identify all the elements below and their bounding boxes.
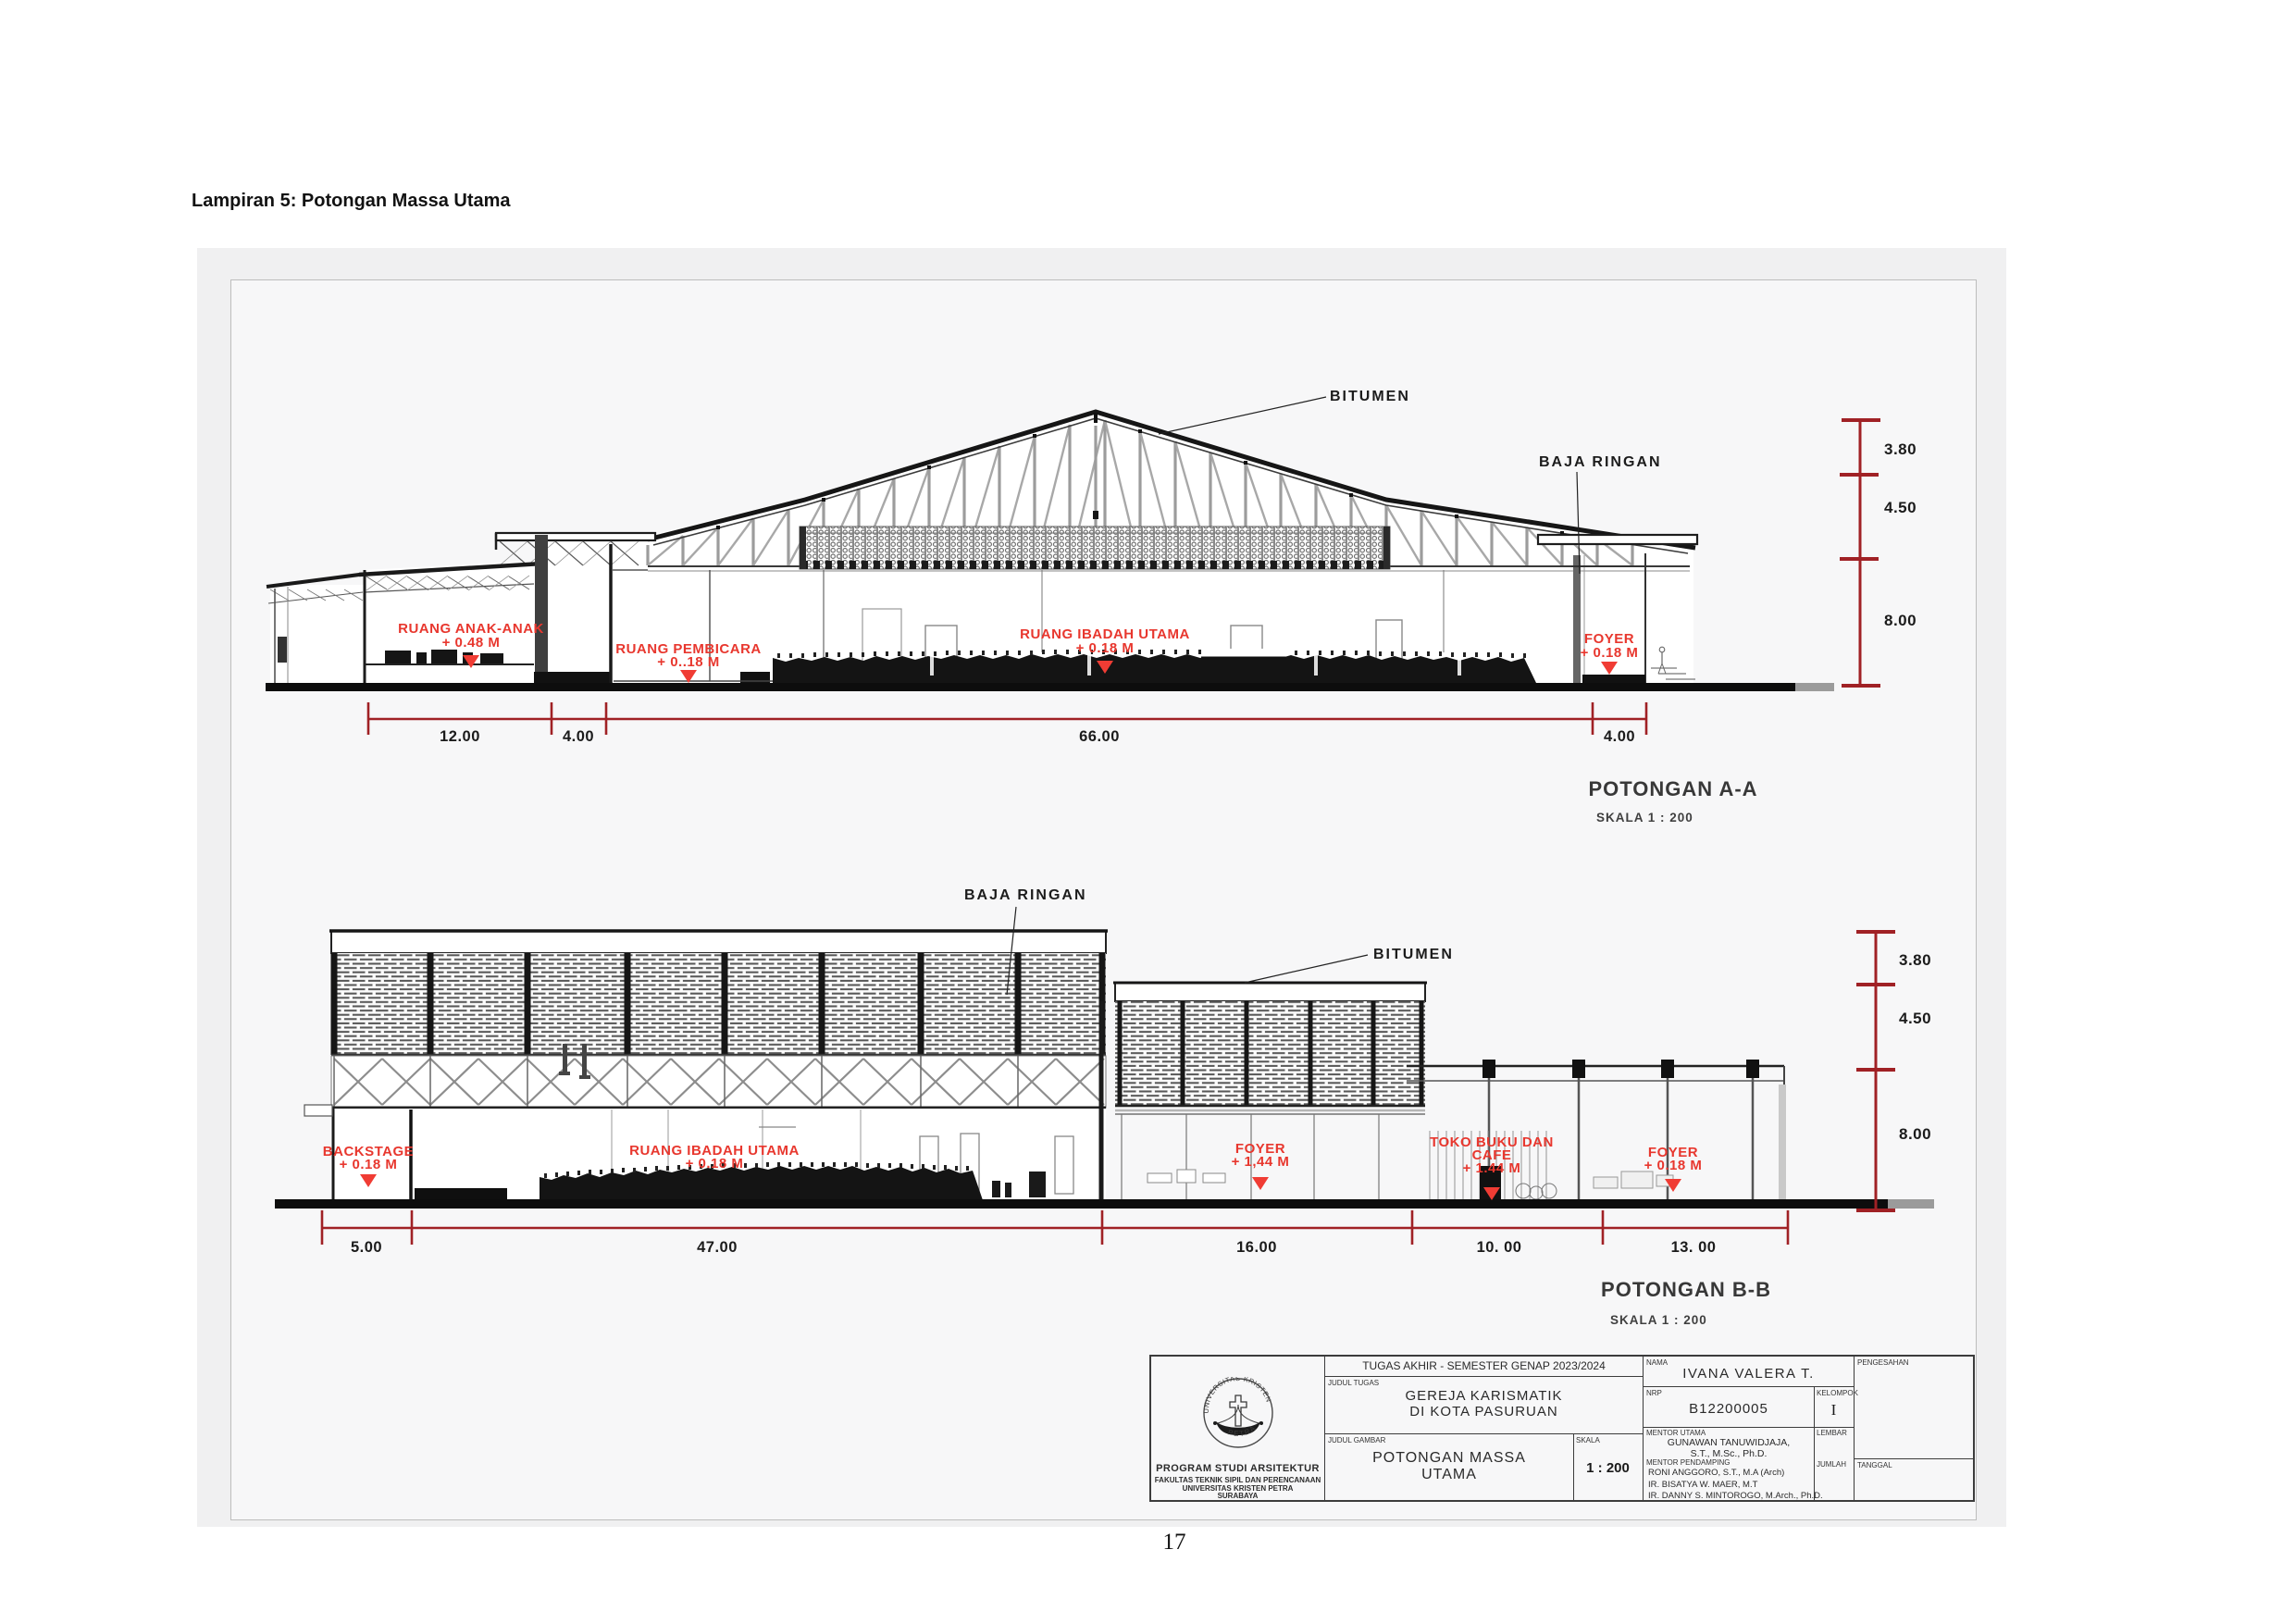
- svg-text:8.00: 8.00: [1899, 1125, 1931, 1143]
- svg-text:+ 0..18 M: + 0..18 M: [657, 654, 719, 670]
- svg-text:+ 0.18 M: + 0.18 M: [340, 1157, 398, 1172]
- svg-text:3.80: 3.80: [1899, 951, 1931, 969]
- svg-text:8.00: 8.00: [1884, 612, 1917, 629]
- svg-text:4.00: 4.00: [563, 728, 594, 745]
- svg-text:5.00: 5.00: [351, 1239, 382, 1256]
- svg-text:POTONGAN B-B: POTONGAN B-B: [1601, 1278, 1771, 1301]
- svg-text:BITUMEN: BITUMEN: [1373, 947, 1454, 962]
- svg-text:+ 1,44 M: + 1,44 M: [1232, 1154, 1290, 1170]
- svg-text:+ 0.48 M: + 0.48 M: [442, 635, 501, 651]
- svg-text:BAJA RINGAN: BAJA RINGAN: [1539, 454, 1662, 470]
- svg-text:3.80: 3.80: [1884, 440, 1917, 458]
- svg-text:+ 0.18 M: + 0.18 M: [686, 1156, 744, 1172]
- svg-text:+ 1.44 M: + 1.44 M: [1463, 1160, 1521, 1176]
- svg-text:+ 0.18 M: + 0.18 M: [1076, 640, 1135, 656]
- svg-text:66.00: 66.00: [1079, 728, 1120, 745]
- svg-text:BAJA RINGAN: BAJA RINGAN: [964, 887, 1087, 903]
- svg-text:PETRA: PETRA: [1227, 1423, 1259, 1438]
- svg-text:4.00: 4.00: [1604, 728, 1635, 745]
- svg-text:12.00: 12.00: [440, 728, 480, 745]
- svg-text:+ 0.18 M: + 0.18 M: [1644, 1158, 1703, 1173]
- svg-text:SKALA 1 : 200: SKALA 1 : 200: [1610, 1313, 1707, 1327]
- svg-text:4.50: 4.50: [1899, 1010, 1931, 1027]
- svg-text:POTONGAN A-A: POTONGAN A-A: [1588, 777, 1757, 800]
- svg-text:16.00: 16.00: [1236, 1239, 1277, 1256]
- svg-text:10. 00: 10. 00: [1477, 1239, 1522, 1256]
- svg-text:47.00: 47.00: [697, 1239, 738, 1256]
- svg-text:BITUMEN: BITUMEN: [1330, 389, 1410, 404]
- svg-text:SKALA 1 : 200: SKALA 1 : 200: [1596, 811, 1693, 824]
- svg-text:4.50: 4.50: [1884, 499, 1917, 516]
- svg-text:+ 0.18 M: + 0.18 M: [1581, 645, 1639, 661]
- svg-text:13. 00: 13. 00: [1671, 1239, 1717, 1256]
